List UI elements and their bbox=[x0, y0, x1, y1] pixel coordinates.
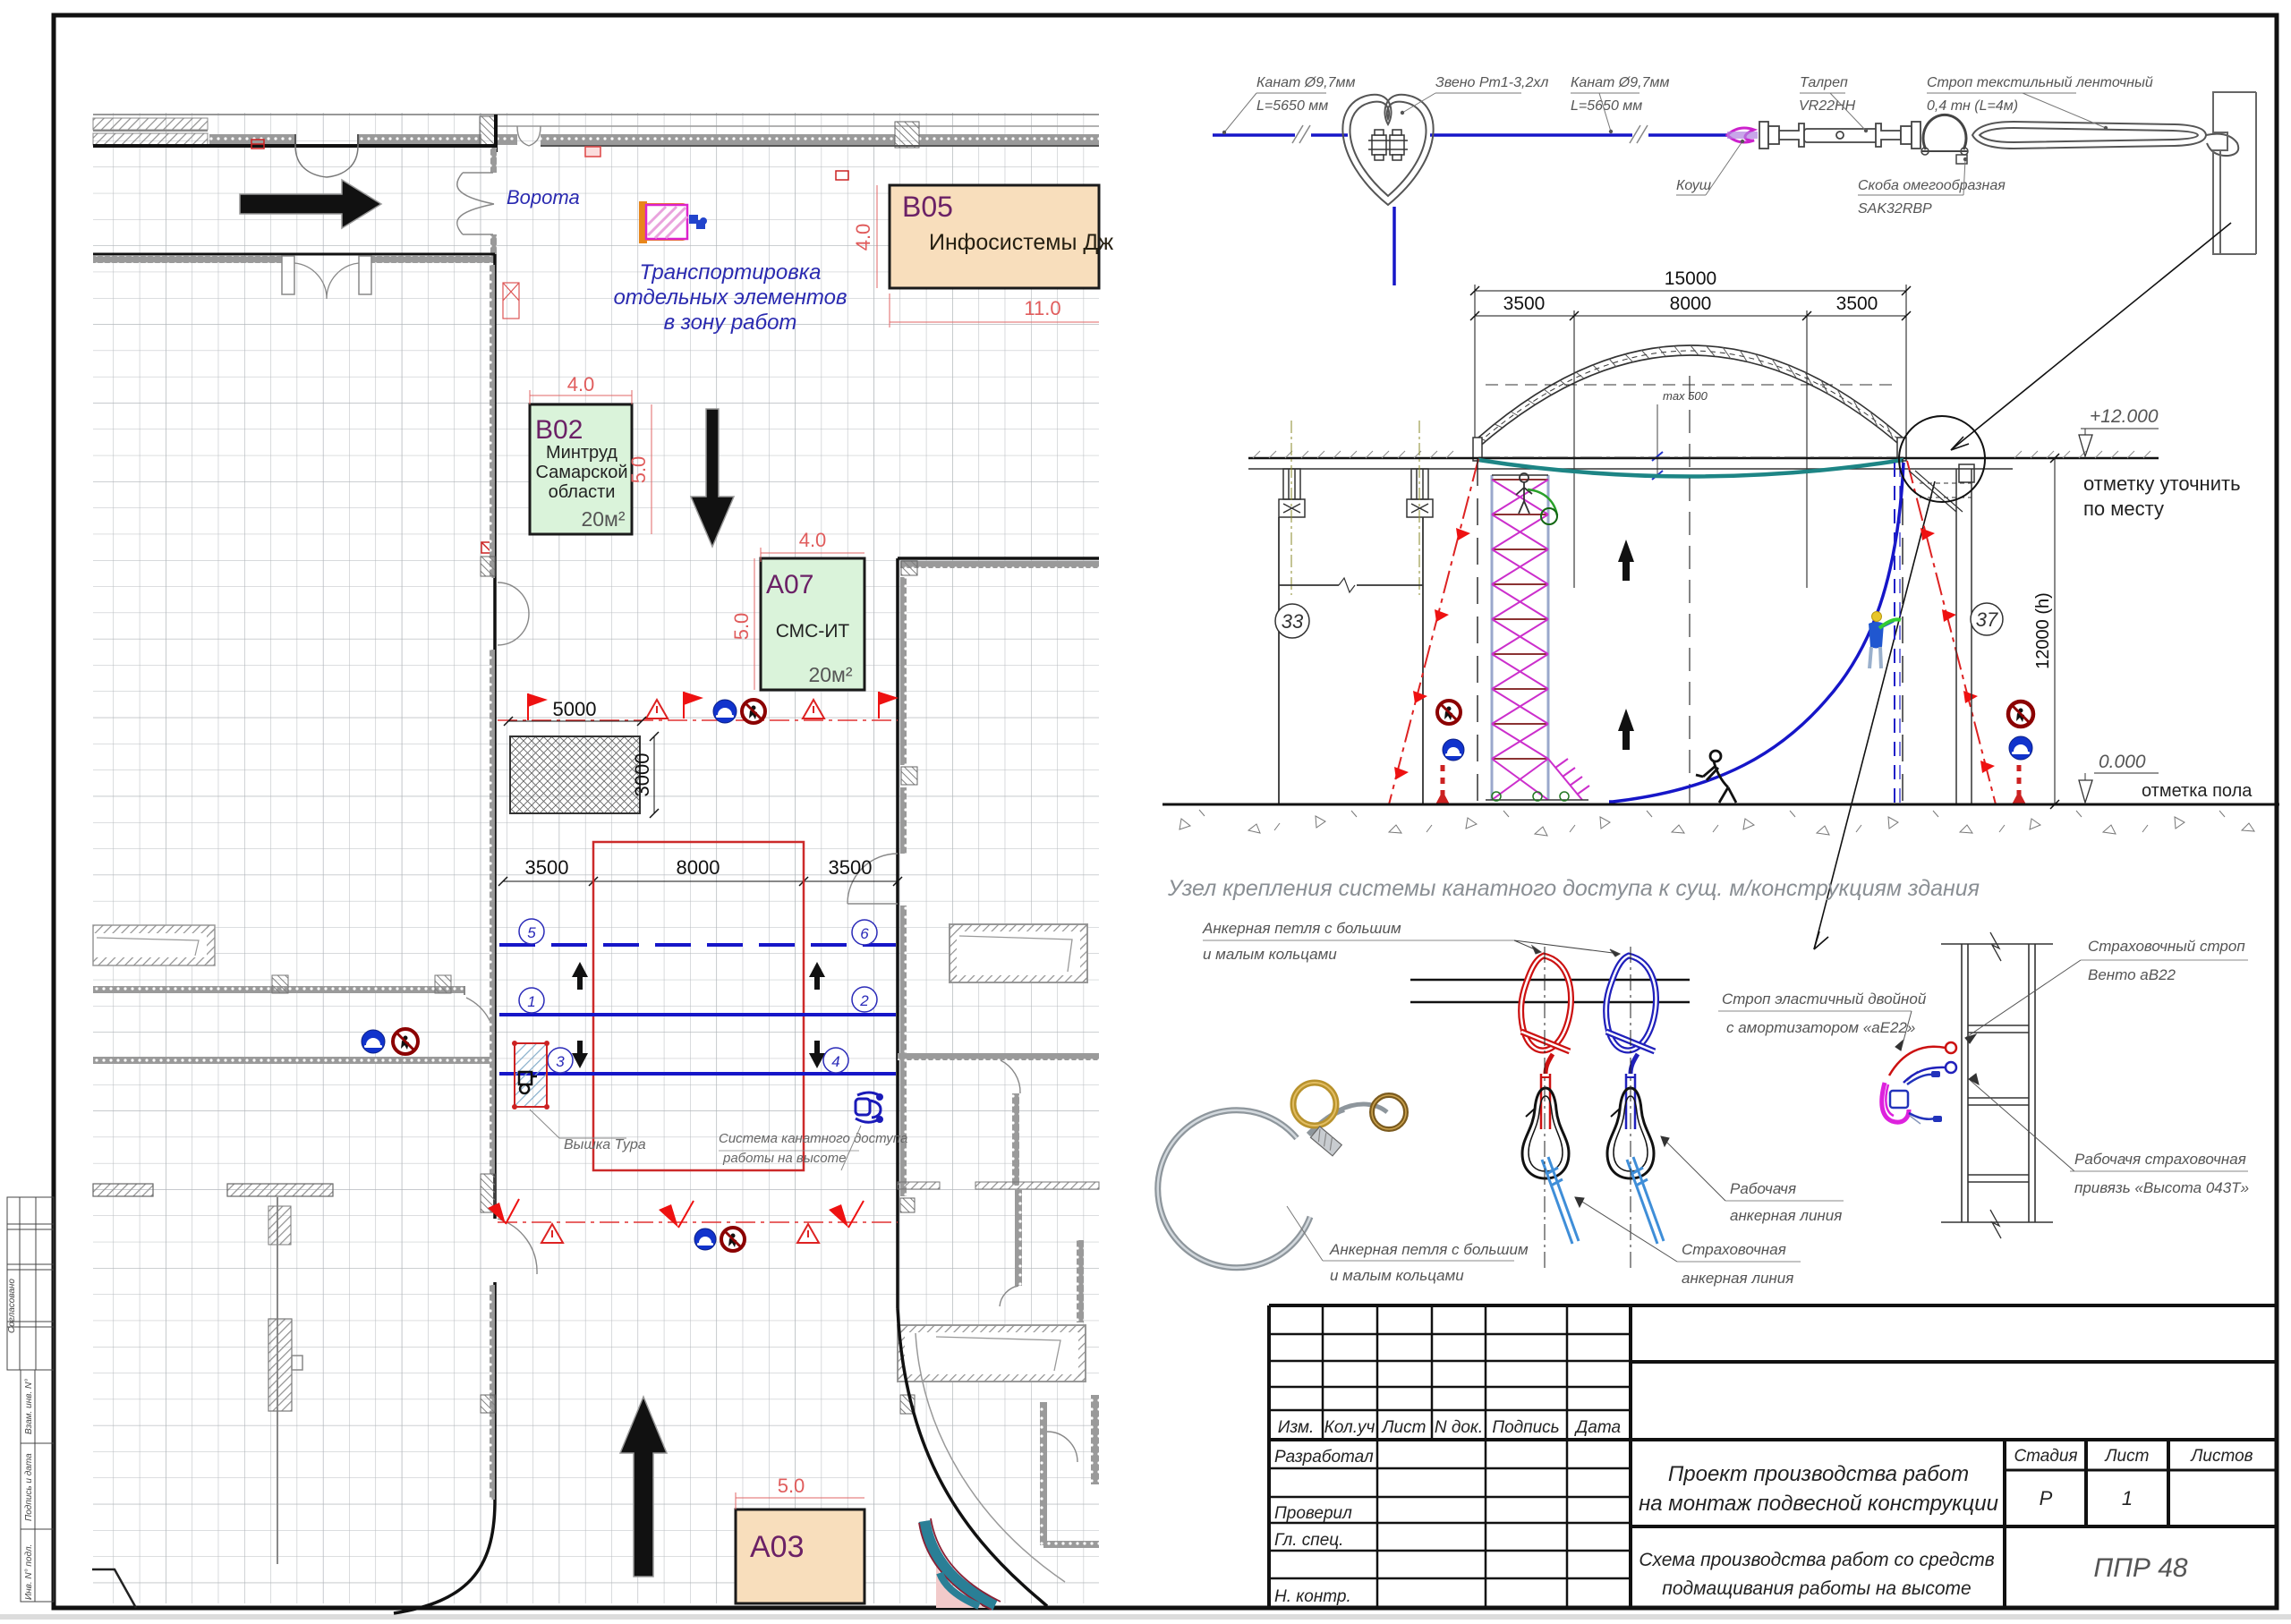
svg-text:5.0: 5.0 bbox=[730, 613, 753, 641]
svg-text:Инв. N° подл.: Инв. N° подл. bbox=[24, 1544, 34, 1600]
svg-text:Строп эластичный двойной: Строп эластичный двойной bbox=[1722, 991, 1927, 1008]
svg-text:3500: 3500 bbox=[829, 856, 873, 879]
svg-text:3500: 3500 bbox=[525, 856, 569, 879]
svg-text:6: 6 bbox=[860, 925, 869, 942]
svg-text:20м²: 20м² bbox=[808, 663, 852, 686]
svg-text:2: 2 bbox=[859, 992, 869, 1009]
svg-text:Взам. инв. N°: Взам. инв. N° bbox=[24, 1379, 34, 1434]
svg-text:0.000: 0.000 bbox=[2099, 752, 2146, 772]
svg-text:5000: 5000 bbox=[553, 698, 597, 720]
svg-text:8000: 8000 bbox=[1670, 293, 1712, 314]
svg-text:Подпись и дата: Подпись и дата bbox=[24, 1453, 34, 1521]
svg-text:Дата: Дата bbox=[1574, 1418, 1621, 1437]
svg-text:Страховочный строп: Страховочный строп bbox=[2088, 938, 2245, 955]
svg-text:Р: Р bbox=[2040, 1487, 2053, 1509]
svg-text:5.0: 5.0 bbox=[778, 1475, 805, 1497]
svg-text:и малым кольцами: и малым кольцами bbox=[1203, 946, 1337, 963]
svg-text:5: 5 bbox=[527, 924, 536, 941]
svg-text:Узел крепления системы канатно: Узел крепления системы канатного доступа… bbox=[1167, 876, 1980, 901]
svg-text:+12.000: +12.000 bbox=[2090, 406, 2159, 427]
svg-text:8000: 8000 bbox=[677, 856, 720, 879]
svg-text:B05: B05 bbox=[902, 191, 953, 223]
svg-text:Самарской: Самарской bbox=[535, 463, 627, 482]
svg-text:Скоба омегообразная: Скоба омегообразная bbox=[1858, 178, 2006, 193]
svg-text:отметка пола: отметка пола bbox=[2142, 781, 2253, 801]
svg-text:и малым кольцами: и малым кольцами bbox=[1330, 1267, 1464, 1284]
svg-text:N док.: N док. bbox=[1435, 1418, 1483, 1437]
svg-text:Анкерная петля с большим: Анкерная петля с большим bbox=[1329, 1241, 1529, 1258]
svg-text:работы на высоте: работы на высоте bbox=[722, 1151, 846, 1166]
svg-text:12000 (h): 12000 (h) bbox=[2033, 592, 2053, 669]
svg-text:3000: 3000 bbox=[631, 753, 653, 797]
svg-text:Стадия: Стадия bbox=[2014, 1447, 2077, 1466]
svg-text:отметку уточнить: отметку уточнить bbox=[2083, 472, 2241, 495]
svg-text:по месту: по месту bbox=[2083, 497, 2164, 520]
svg-text:15000: 15000 bbox=[1665, 268, 1716, 289]
svg-text:Звено Рт1-3,2хл: Звено Рт1-3,2хл bbox=[1435, 75, 1548, 90]
svg-text:3500: 3500 bbox=[1836, 293, 1878, 314]
svg-text:37: 37 bbox=[1976, 608, 1998, 631]
svg-text:3500: 3500 bbox=[1503, 293, 1546, 314]
svg-text:на монтаж подвесной конструкци: на монтаж подвесной конструкции bbox=[1639, 1492, 1998, 1516]
svg-text:Канат Ø9,7мм: Канат Ø9,7мм bbox=[1256, 75, 1355, 90]
svg-text:5.0: 5.0 bbox=[627, 456, 650, 484]
svg-text:Рабочачя: Рабочачя bbox=[1730, 1180, 1796, 1197]
svg-text:SAK32RBP: SAK32RBP bbox=[1858, 201, 1932, 217]
svg-text:Кол.уч: Кол.уч bbox=[1324, 1418, 1375, 1437]
svg-text:33: 33 bbox=[1282, 610, 1304, 633]
svg-text:L=5650 мм: L=5650 мм bbox=[1571, 98, 1642, 114]
svg-text:СМС-ИТ: СМС-ИТ bbox=[776, 621, 850, 642]
svg-text:Изм.: Изм. bbox=[1278, 1418, 1315, 1437]
svg-text:ППР 48: ППР 48 bbox=[2093, 1553, 2188, 1583]
svg-text:в зону работ: в зону работ bbox=[664, 310, 797, 335]
svg-text:Проверил: Проверил bbox=[1274, 1504, 1352, 1523]
svg-text:Ворота: Ворота bbox=[507, 186, 580, 208]
svg-text:Коуш: Коуш bbox=[1676, 178, 1711, 193]
svg-text:Листов: Листов bbox=[2189, 1447, 2253, 1466]
svg-text:Вышка Тура: Вышка Тура bbox=[564, 1137, 646, 1152]
svg-text:4.0: 4.0 bbox=[852, 224, 874, 251]
svg-text:анкерная линия: анкерная линия bbox=[1682, 1270, 1793, 1287]
svg-text:области: области bbox=[549, 482, 616, 502]
svg-text:Лист: Лист bbox=[1381, 1418, 1427, 1437]
svg-text:с амортизатором «аЕ22»: с амортизатором «аЕ22» bbox=[1726, 1019, 1915, 1036]
svg-text:Талреп: Талреп bbox=[1800, 75, 1848, 90]
svg-text:1: 1 bbox=[2122, 1487, 2133, 1509]
svg-text:Подпись: Подпись bbox=[1492, 1418, 1559, 1437]
svg-text:4: 4 bbox=[831, 1053, 839, 1070]
svg-text:0,4 тн (L=4м): 0,4 тн (L=4м) bbox=[1927, 98, 2018, 114]
svg-text:20м²: 20м² bbox=[581, 507, 625, 531]
svg-text:Лист: Лист bbox=[2104, 1447, 2150, 1466]
svg-text:Венто аВ22: Венто аВ22 bbox=[2088, 966, 2176, 983]
svg-text:привязь «Высота 043Т»: привязь «Высота 043Т» bbox=[2074, 1179, 2249, 1196]
svg-text:анкерная линия: анкерная линия bbox=[1730, 1207, 1842, 1224]
svg-text:L=5650 мм: L=5650 мм bbox=[1256, 98, 1328, 114]
svg-text:4.0: 4.0 bbox=[567, 373, 595, 395]
svg-text:подмащивания работы на высоте: подмащивания работы на высоте bbox=[1662, 1578, 1971, 1599]
svg-text:Анкерная петля с большим: Анкерная петля с большим bbox=[1202, 920, 1401, 937]
svg-text:11.0: 11.0 bbox=[1024, 297, 1060, 319]
svg-text:Схема производства работ со ср: Схема производства работ со средств bbox=[1639, 1550, 1994, 1570]
svg-text:A03: A03 bbox=[750, 1530, 805, 1564]
svg-text:Транспортировка: Транспортировка bbox=[640, 260, 822, 285]
svg-text:Строп текстильный ленточный: Строп текстильный ленточный bbox=[1927, 75, 2153, 90]
svg-text:Система канатного доступа: Система канатного доступа bbox=[719, 1131, 907, 1146]
svg-text:4.0: 4.0 bbox=[799, 529, 827, 551]
svg-text:Разработал: Разработал bbox=[1274, 1448, 1374, 1467]
svg-text:Гл. спец.: Гл. спец. bbox=[1274, 1531, 1343, 1550]
svg-text:отдельных элементов: отдельных элементов bbox=[613, 285, 847, 310]
svg-text:Проект производства работ: Проект производства работ bbox=[1668, 1462, 1969, 1486]
svg-text:B02: B02 bbox=[535, 415, 583, 445]
svg-text:Согласовано: Согласовано bbox=[7, 1279, 17, 1333]
svg-text:Страховочная: Страховочная bbox=[1682, 1241, 1786, 1258]
svg-text:Минтруд: Минтруд bbox=[546, 443, 617, 463]
svg-text:A07: A07 bbox=[766, 570, 813, 599]
svg-text:Канат Ø9,7мм: Канат Ø9,7мм bbox=[1571, 75, 1669, 90]
svg-text:Инфосистемы Дж: Инфосистемы Дж bbox=[929, 230, 1113, 255]
svg-text:3: 3 bbox=[556, 1053, 565, 1070]
svg-text:1: 1 bbox=[527, 993, 535, 1010]
svg-text:Н. контр.: Н. контр. bbox=[1274, 1587, 1351, 1606]
svg-text:Рабочачя страховочная: Рабочачя страховочная bbox=[2074, 1151, 2246, 1168]
svg-text:max 500: max 500 bbox=[1663, 389, 1708, 403]
